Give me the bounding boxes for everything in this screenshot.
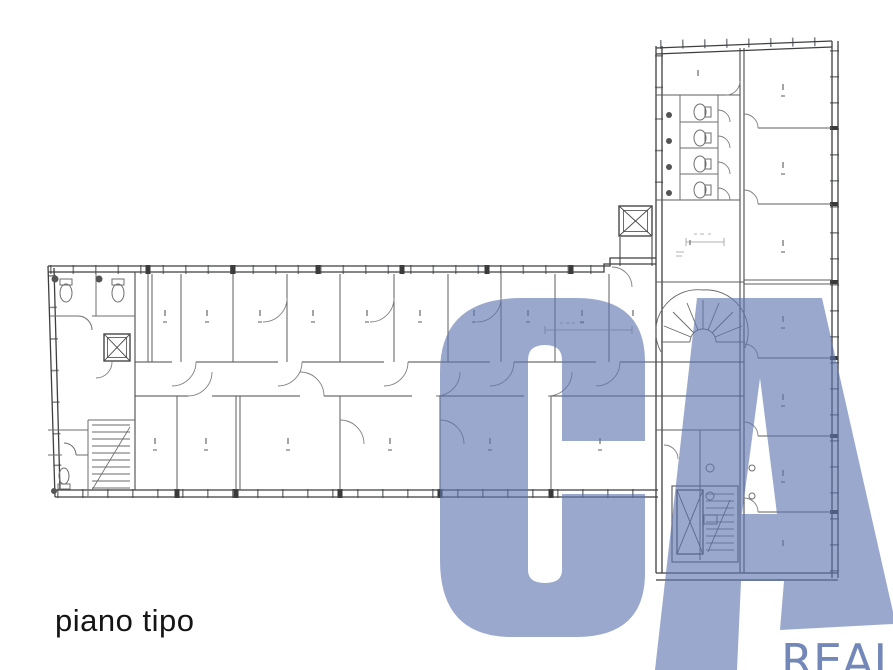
caption-piano-tipo: piano tipo [55, 602, 194, 640]
wall-piers [148, 128, 838, 512]
dimension-annotations [545, 234, 724, 334]
outer-walls [48, 41, 838, 580]
elevator-shaft-icon [619, 206, 652, 266]
elevator-icon [104, 334, 130, 361]
curved-staircase-icon [656, 290, 748, 352]
bathroom-top-left [50, 272, 135, 330]
staircase-left-icon [88, 420, 135, 490]
watermark-brand-text: REAL [781, 639, 893, 670]
screenshot: REAL piano tipo [0, 0, 893, 670]
sink-icon [96, 276, 103, 283]
wc-block-vertical-wing [666, 95, 718, 200]
watermark-brand: REAL [781, 639, 893, 670]
door-arcs [96, 81, 758, 512]
sink-icon [52, 276, 59, 283]
sink-icon [51, 488, 57, 494]
floor-plan-drawing [0, 0, 893, 670]
room-label-marks [153, 70, 785, 546]
